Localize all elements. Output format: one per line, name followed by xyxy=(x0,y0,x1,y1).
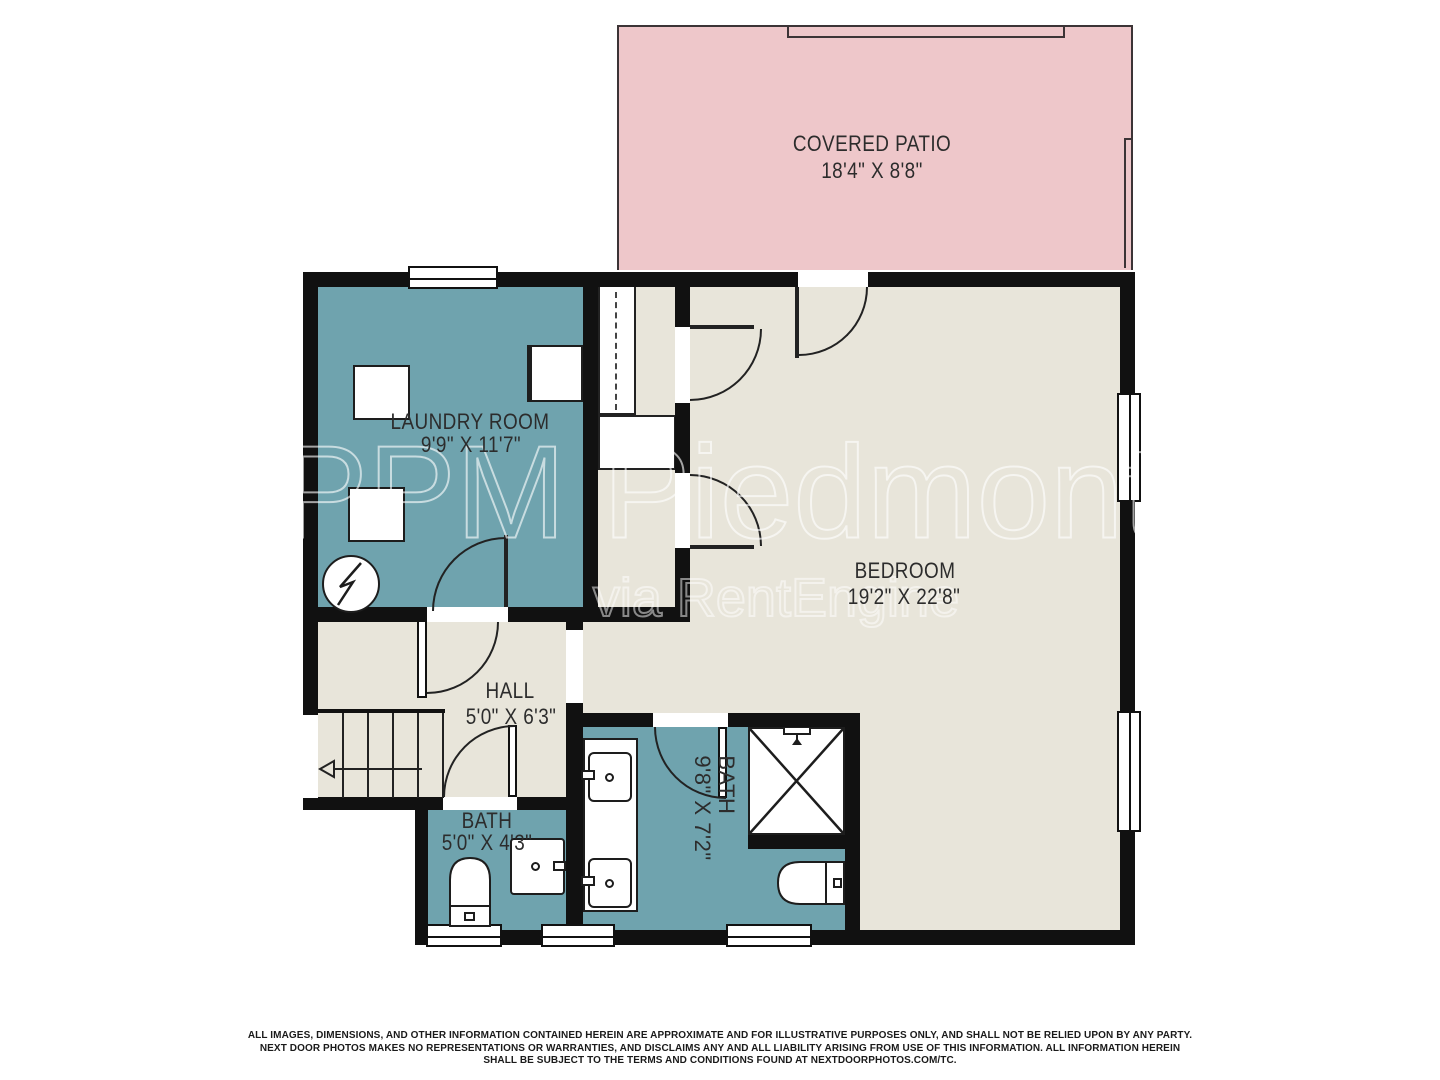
wall xyxy=(566,703,583,930)
wall xyxy=(1120,830,1135,945)
wall xyxy=(566,622,583,630)
window xyxy=(1117,711,1141,832)
disclaimer-line-1: ALL IMAGES, DIMENSIONS, AND OTHER INFORM… xyxy=(0,1030,1440,1043)
door-leaf xyxy=(417,620,427,698)
room-dims-bath-main: 9'8" X 7'2" xyxy=(690,755,714,860)
toilet xyxy=(446,856,494,928)
shower xyxy=(748,727,845,835)
window xyxy=(408,266,498,289)
watermark-primary: PPM Piedmont xyxy=(280,417,1160,568)
room-dims-hall: 5'0" X 6'3" xyxy=(466,704,557,730)
room-dims-bedroom: 19'2" X 22'8" xyxy=(848,584,961,610)
wall xyxy=(415,797,428,945)
patio-roof-edge xyxy=(787,25,1065,38)
wall xyxy=(303,272,410,287)
appliance-dryer xyxy=(527,345,583,402)
closet-rod-dashed-line xyxy=(615,292,617,410)
faucet-icon xyxy=(581,770,595,780)
room-dims-laundry: 9'9" X 11'7" xyxy=(421,432,521,458)
door-opening xyxy=(798,272,868,287)
sink-drain-icon xyxy=(605,879,614,888)
wall xyxy=(498,272,798,287)
faucet-icon xyxy=(581,876,595,886)
room-label-bedroom: BEDROOM xyxy=(855,558,956,584)
patio-screen-edge xyxy=(1124,138,1133,268)
wall xyxy=(810,930,1135,945)
closet xyxy=(598,287,636,415)
wall xyxy=(517,797,583,810)
stair-opening xyxy=(303,715,318,798)
sink-drain-icon xyxy=(605,773,614,782)
disclaimer-line-3: SHALL BE SUBJECT TO THE TERMS AND CONDIT… xyxy=(0,1055,1440,1068)
wall xyxy=(573,713,653,727)
wall xyxy=(613,930,728,945)
room-dims-covered-patio: 18'4" X 8'8" xyxy=(821,158,923,184)
wall xyxy=(868,272,1135,287)
faucet-icon xyxy=(553,861,566,871)
room-dims-bath-small: 5'0" X 4'3" xyxy=(442,830,533,856)
door-opening xyxy=(653,713,728,727)
floor-plan: PPM Piedmont via RentEngine COVERED PATI… xyxy=(0,0,1440,1080)
toilet xyxy=(776,860,846,906)
disclaimer: ALL IMAGES, DIMENSIONS, AND OTHER INFORM… xyxy=(0,1030,1440,1068)
room-label-covered-patio: COVERED PATIO xyxy=(793,131,951,157)
stairs xyxy=(318,709,445,799)
wall xyxy=(500,930,543,945)
window xyxy=(541,924,615,947)
room-label-hall: HALL xyxy=(485,678,534,704)
wall xyxy=(1120,272,1135,395)
wall xyxy=(675,287,690,327)
wall xyxy=(728,713,860,727)
window xyxy=(726,924,812,947)
room-label-bath-main-name: BATH xyxy=(714,755,738,860)
door-opening xyxy=(675,327,690,403)
room-label-bath-main: BATH 9'8" X 7'2" xyxy=(690,755,738,860)
sink-drain-icon xyxy=(531,862,540,871)
disclaimer-line-2: NEXT DOOR PHOTOS MAKES NO REPRESENTATION… xyxy=(0,1043,1440,1056)
cased-opening xyxy=(566,630,583,703)
wall xyxy=(845,713,860,930)
shower-half-wall xyxy=(748,835,845,849)
